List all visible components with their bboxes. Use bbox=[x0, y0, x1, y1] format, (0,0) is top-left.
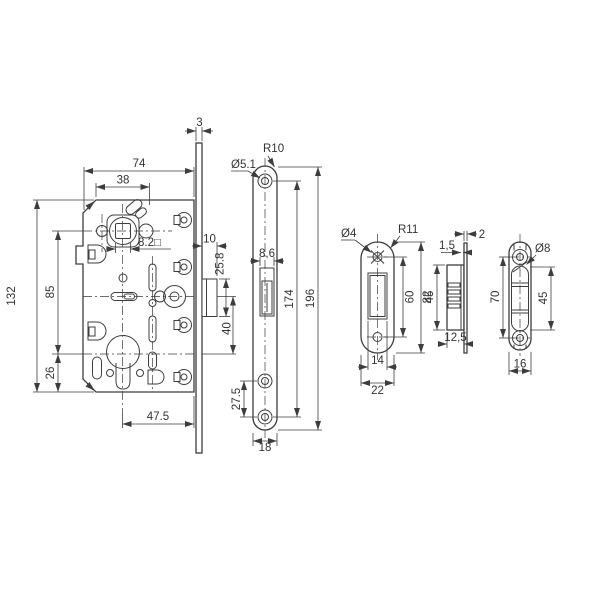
technical-drawing-page: 8.2□ 74 38 132 85 26 47.5 bbox=[0, 0, 600, 600]
dim-box-depth: 12,5 bbox=[438, 332, 473, 348]
label-corner-radius-r10: R10 bbox=[263, 143, 284, 167]
dim-label-26: 26 bbox=[45, 367, 57, 380]
dim-label-85: 85 bbox=[45, 286, 57, 299]
dim-label-38: 38 bbox=[117, 175, 130, 187]
faceplate-front-view: Ø5.1 R10 8,6 174 196 bbox=[231, 143, 322, 454]
dim-label-10: 10 bbox=[203, 234, 216, 246]
dim-label-196: 196 bbox=[305, 289, 317, 308]
dim-label-r10: R10 bbox=[263, 143, 284, 155]
dim-label-60: 60 bbox=[405, 291, 417, 304]
dim-label-45-side: 45 bbox=[424, 291, 436, 304]
dim-latch-to-cylinder: 40 bbox=[222, 297, 234, 355]
dim-label-18: 18 bbox=[259, 442, 272, 454]
round-strike-plate-view: Ø8 70 45 16 bbox=[490, 234, 555, 375]
dim-label-27-5: 27.5 bbox=[231, 388, 243, 410]
strike-box-side-view: 2 1,5 45 12,5 bbox=[424, 229, 485, 353]
dim-label-16: 16 bbox=[514, 359, 527, 371]
dim-label-spindle-square: 8.2□ bbox=[138, 237, 161, 249]
dim-label-8-6: 8,6 bbox=[259, 248, 275, 260]
dim-label-d8: Ø8 bbox=[535, 243, 550, 255]
dim-label-r11: R11 bbox=[398, 224, 418, 236]
dim-label-12-5: 12,5 bbox=[444, 332, 466, 344]
dim-label-132: 132 bbox=[6, 286, 18, 305]
dim-round-strike-hole-spacing: 70 bbox=[490, 257, 510, 338]
dim-label-70: 70 bbox=[490, 291, 502, 304]
dim-label-14: 14 bbox=[371, 355, 384, 367]
dim-round-strike-opening-height: 45 bbox=[530, 267, 555, 330]
label-strike-corner-radius: R11 bbox=[391, 224, 419, 248]
label-strike-hole-dia: Ø4 bbox=[341, 228, 372, 253]
dim-label-47-5: 47.5 bbox=[147, 411, 169, 423]
dim-box-height: 45 bbox=[424, 265, 445, 330]
dim-label-d5-1: Ø5.1 bbox=[231, 159, 256, 171]
dim-label-2: 2 bbox=[479, 229, 485, 241]
label-hole-dia-5-1: Ø5.1 bbox=[231, 159, 260, 178]
latch-bolt-side bbox=[202, 279, 217, 317]
dim-label-1-5: 1,5 bbox=[439, 240, 455, 252]
dim-plate-thickness: 3 bbox=[185, 117, 213, 141]
strike-plate-view: Ø4 R11 60 82 14 bbox=[341, 224, 434, 397]
dim-label-25-8: 25.8 bbox=[215, 253, 227, 275]
lock-technical-drawing: 8.2□ 74 38 132 85 26 47.5 bbox=[0, 0, 600, 600]
dim-label-22: 22 bbox=[371, 385, 384, 397]
dim-label-174: 174 bbox=[284, 289, 296, 309]
dim-label-d4: Ø4 bbox=[341, 228, 357, 240]
faceplate-strip bbox=[196, 143, 202, 453]
dim-plate-edge-thickness: 2 bbox=[454, 229, 485, 241]
dim-label-3: 3 bbox=[196, 117, 202, 129]
dim-label-40: 40 bbox=[222, 322, 234, 335]
dim-label-74: 74 bbox=[133, 158, 146, 170]
dim-label-45-plate: 45 bbox=[538, 292, 550, 305]
